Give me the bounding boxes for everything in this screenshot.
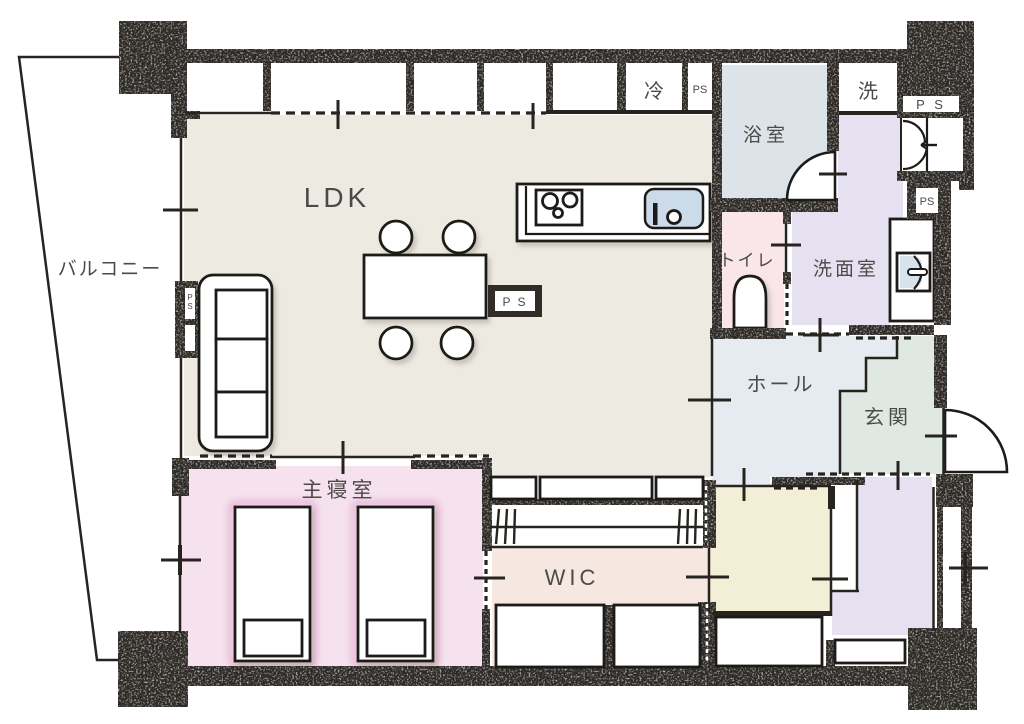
svg-text:WIC: WIC xyxy=(545,565,600,590)
svg-text:P S: P S xyxy=(502,295,527,309)
svg-text:トイレ: トイレ xyxy=(719,251,776,270)
svg-text:PS: PS xyxy=(920,196,935,208)
svg-text:主寝室: 主寝室 xyxy=(302,479,377,502)
svg-text:P: P xyxy=(187,293,192,302)
svg-text:洗: 洗 xyxy=(858,80,878,103)
svg-text:LDK: LDK xyxy=(304,182,370,213)
svg-text:冷: 冷 xyxy=(644,80,664,103)
svg-text:S: S xyxy=(187,302,192,311)
svg-text:PS: PS xyxy=(693,84,708,96)
svg-text:バルコニー: バルコニー xyxy=(58,259,163,280)
svg-text:P S: P S xyxy=(916,97,946,112)
svg-text:浴室: 浴室 xyxy=(743,124,789,146)
svg-text:ホール: ホール xyxy=(747,374,816,396)
svg-text:玄関: 玄関 xyxy=(864,406,912,429)
svg-text:洗面室: 洗面室 xyxy=(813,258,879,280)
